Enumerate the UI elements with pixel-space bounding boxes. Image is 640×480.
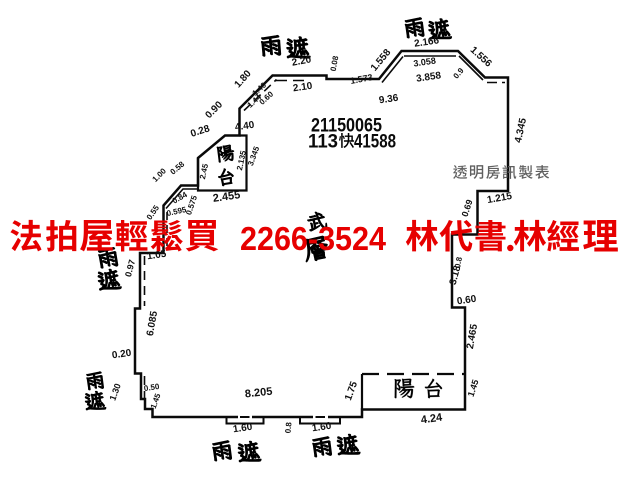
svg-text:113: 113 — [308, 131, 338, 153]
svg-text:0.8: 0.8 — [284, 421, 294, 433]
svg-text:41588: 41588 — [354, 131, 396, 153]
svg-text:2266-3524: 2266-3524 — [240, 220, 387, 257]
